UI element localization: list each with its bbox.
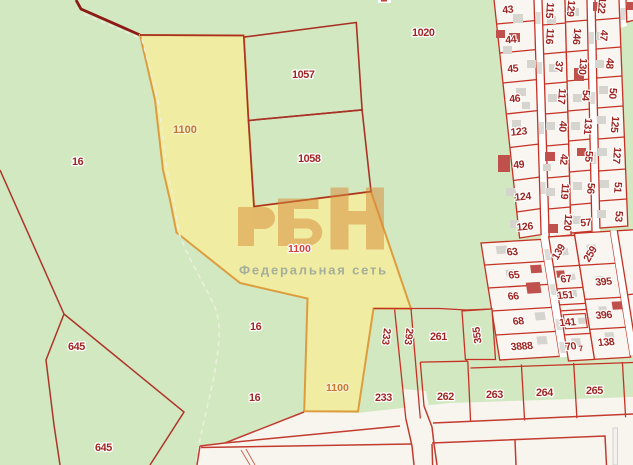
svg-text:126: 126	[516, 220, 534, 233]
svg-text:1020: 1020	[412, 27, 435, 39]
svg-text:396: 396	[595, 309, 614, 322]
svg-text:53: 53	[612, 210, 625, 222]
svg-text:138: 138	[597, 336, 616, 349]
svg-text:123: 123	[510, 125, 528, 138]
svg-text:124: 124	[514, 190, 532, 203]
svg-text:265: 265	[586, 385, 603, 397]
svg-text:44: 44	[505, 34, 517, 47]
svg-text:263: 263	[486, 389, 503, 401]
svg-text:16: 16	[249, 392, 261, 404]
svg-text:Федеральная сеть: Федеральная сеть	[239, 263, 388, 278]
svg-text:120: 120	[561, 214, 574, 232]
svg-text:127: 127	[610, 147, 623, 165]
svg-text:131: 131	[581, 118, 594, 136]
svg-text:42: 42	[557, 153, 570, 165]
svg-text:233: 233	[375, 392, 392, 404]
svg-text:56: 56	[584, 182, 597, 194]
svg-text:47: 47	[597, 29, 610, 41]
svg-text:262: 262	[437, 391, 454, 403]
svg-text:40: 40	[556, 120, 569, 132]
svg-text:141: 141	[558, 316, 577, 329]
svg-text:116: 116	[543, 28, 556, 45]
svg-text:50: 50	[606, 87, 619, 99]
svg-text:1100: 1100	[288, 243, 311, 255]
svg-text:146: 146	[570, 28, 583, 46]
svg-text:119: 119	[558, 183, 571, 200]
svg-text:261: 261	[430, 331, 447, 343]
svg-text:49: 49	[513, 159, 525, 172]
svg-text:264: 264	[536, 387, 553, 399]
svg-text:395: 395	[594, 276, 613, 289]
svg-text:130: 130	[576, 58, 589, 76]
svg-text:57: 57	[580, 217, 592, 230]
svg-text:645: 645	[68, 341, 85, 353]
svg-text:355: 355	[471, 326, 485, 344]
svg-text:115: 115	[543, 2, 556, 19]
svg-text:54: 54	[579, 89, 592, 101]
svg-text:16: 16	[72, 156, 84, 168]
svg-text:48: 48	[603, 57, 616, 69]
svg-text:1100: 1100	[326, 382, 349, 394]
svg-text:125: 125	[608, 116, 621, 134]
svg-text:37: 37	[552, 60, 565, 72]
svg-text:1100: 1100	[173, 124, 197, 136]
svg-text:129: 129	[564, 0, 577, 17]
svg-text:645: 645	[95, 442, 112, 454]
svg-text:45: 45	[507, 63, 519, 76]
svg-text:16: 16	[250, 321, 262, 333]
svg-text:51: 51	[611, 181, 624, 193]
svg-text:43: 43	[502, 4, 514, 17]
svg-text:117: 117	[555, 88, 568, 105]
svg-text:1057: 1057	[292, 69, 315, 81]
svg-text:151: 151	[556, 289, 575, 302]
svg-text:46: 46	[509, 93, 521, 106]
svg-text:55: 55	[582, 150, 595, 162]
svg-text:233: 233	[379, 328, 393, 346]
svg-text:293: 293	[401, 328, 415, 346]
svg-text:1058: 1058	[298, 153, 321, 165]
svg-text:122: 122	[595, 0, 608, 14]
svg-text:3888: 3888	[510, 340, 534, 353]
